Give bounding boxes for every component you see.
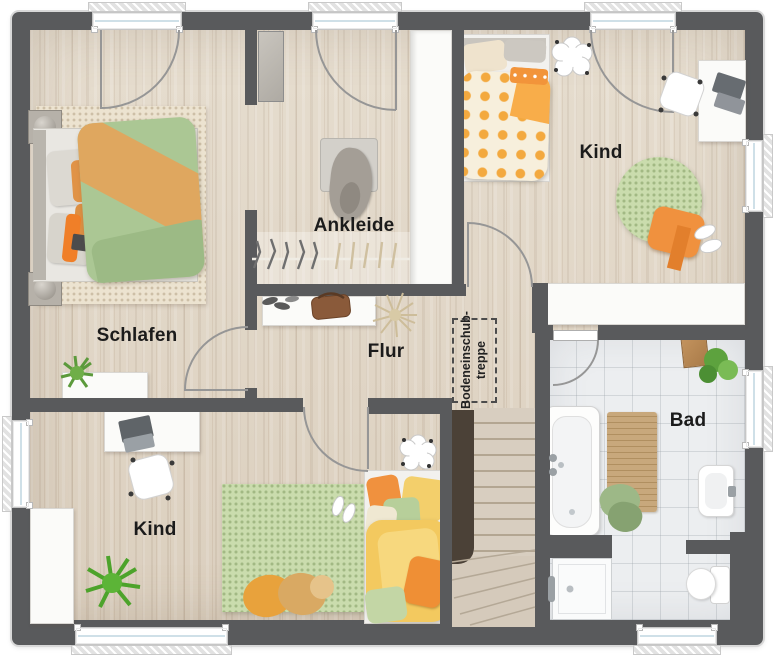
wheel: [694, 112, 699, 117]
winder-line: [452, 550, 535, 562]
slipper: [699, 237, 724, 255]
winder-line: [452, 563, 535, 580]
leg: [429, 439, 433, 443]
door-swing-arc: [185, 327, 248, 390]
shoe: [274, 301, 291, 311]
bag-body: [311, 294, 351, 320]
bench-items: [337, 181, 362, 216]
blanket-tail: [337, 181, 362, 216]
room-label-kind-top: Kind: [579, 142, 622, 164]
shower-fixture: [548, 576, 555, 602]
winder-line: [470, 607, 535, 625]
hanger: [268, 239, 275, 269]
wheel: [170, 461, 175, 466]
teddy-head: [310, 575, 334, 599]
window-swing-arc: [101, 30, 179, 108]
plant: [86, 556, 140, 607]
door-swing-arc: [304, 407, 368, 471]
window-swing-arc: [316, 30, 396, 110]
wheel: [166, 496, 171, 501]
flower-table: [400, 435, 436, 470]
wheel: [131, 458, 136, 463]
clothes-rail: [252, 239, 410, 269]
hanger: [298, 240, 304, 269]
window-sill: [763, 134, 773, 218]
window-sill: [71, 645, 232, 655]
stair-winder-lines: [452, 550, 535, 625]
room-label-flur: Flur: [368, 341, 405, 363]
shower-drain: [567, 586, 574, 593]
spout: [558, 462, 564, 468]
sink-tap: [728, 486, 736, 497]
foliage: [718, 360, 738, 380]
wheel: [698, 80, 703, 85]
hanging-garments: [336, 242, 396, 269]
leg: [585, 71, 589, 75]
hanger: [283, 242, 288, 269]
drain: [569, 509, 575, 515]
door-swing-arc: [553, 340, 598, 385]
winder-line: [454, 578, 535, 598]
floor-plan: Schlafen Ankleide Kind Flur Kind Bad Bod…: [12, 12, 763, 645]
floor-plan-page: Schlafen Ankleide Kind Flur Kind Bad Bod…: [0, 0, 775, 657]
wheel: [129, 492, 134, 497]
leg: [402, 438, 406, 442]
flower-table: [552, 37, 592, 76]
garment: [364, 243, 368, 268]
shoes-on-sideboard: [261, 295, 299, 311]
table-top: [409, 444, 427, 462]
hanger: [312, 242, 317, 269]
hanger: [254, 241, 260, 268]
wheel: [662, 76, 667, 81]
pampas-center: [389, 309, 401, 321]
room-label-bad: Bad: [670, 410, 707, 432]
foliage: [699, 365, 717, 383]
attic-ladder-label-line1: Bodeneinschub-: [459, 311, 474, 409]
table-top: [562, 47, 582, 67]
window-sill: [308, 2, 402, 12]
shoe: [285, 295, 300, 303]
attic-ladder-label-line2: treppe: [474, 311, 489, 409]
door-swing-arc: [468, 223, 532, 287]
window-sill: [763, 366, 773, 452]
leg: [427, 464, 431, 468]
garment: [379, 242, 382, 268]
handbag: [311, 294, 351, 320]
wheel: [659, 108, 664, 113]
slippers: [330, 222, 723, 524]
garment: [336, 243, 340, 269]
plant-center: [102, 573, 122, 593]
leg: [401, 462, 405, 466]
door-window-arcs: [101, 30, 673, 471]
tap-handle: [549, 454, 557, 462]
leg: [587, 43, 591, 47]
plant-center: [70, 366, 84, 380]
window-sill: [633, 645, 721, 655]
window-sill: [584, 2, 682, 12]
window-sill: [2, 416, 12, 512]
office-chair: [127, 453, 176, 502]
bath-fittings: [548, 454, 736, 602]
room-label-kind-bottom: Kind: [133, 519, 176, 541]
garment: [392, 243, 396, 268]
window-sill: [88, 2, 186, 12]
leg: [555, 40, 559, 44]
tap-handle: [549, 468, 557, 476]
room-label-schlafen: Schlafen: [97, 325, 178, 347]
pampas-plant: [373, 293, 417, 337]
teddy-bear: [239, 570, 334, 622]
plant: [61, 356, 93, 387]
leg: [554, 68, 558, 72]
hangers: [254, 239, 317, 269]
garment: [351, 242, 354, 269]
attic-ladder-label: Bodeneinschub- treppe: [459, 311, 489, 409]
plant: [699, 348, 738, 383]
room-label-ankleide: Ankleide: [314, 215, 395, 237]
